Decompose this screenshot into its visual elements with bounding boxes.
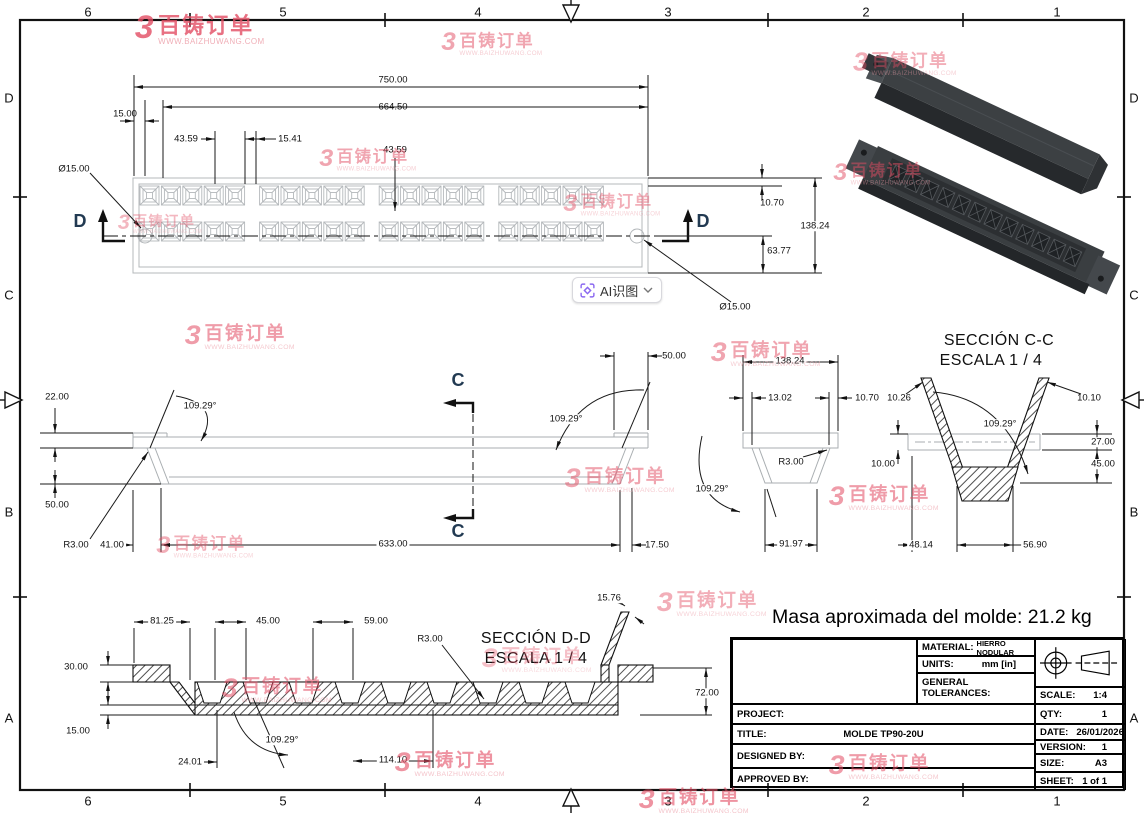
scale-value: 1:4 <box>1093 690 1107 701</box>
material-label: MATERIAL: <box>922 642 974 653</box>
dimension-label: 41.00 <box>98 540 126 550</box>
zone-label: 6 <box>84 794 91 809</box>
zone-label: 6 <box>84 5 91 20</box>
chevron-down-icon <box>643 287 653 293</box>
cavity-square <box>260 186 279 205</box>
qty-label: QTY: <box>1040 709 1062 720</box>
scale-label: SCALE: <box>1040 690 1075 701</box>
size-value: A3 <box>1095 758 1107 769</box>
dimension-label: 15.00 <box>113 109 137 119</box>
dimension-label: Ø15.00 <box>719 302 750 312</box>
cavity-square <box>302 186 321 205</box>
dimension-label: 50.00 <box>662 351 686 361</box>
ai-recognition-button[interactable]: AI识图 <box>572 277 662 303</box>
top-view <box>90 75 822 302</box>
cavity-square <box>443 186 462 205</box>
material-value: HIERRO NODULAR <box>977 639 1030 656</box>
mass-note: Masa aproximada del molde: 21.2 kg <box>772 606 1092 629</box>
dimension-label: 13.02 <box>768 393 792 403</box>
cavity-square <box>422 186 441 205</box>
cavity-square <box>520 186 539 205</box>
zone-label: 1 <box>1053 794 1060 809</box>
dimension-label: R3.00 <box>776 457 805 467</box>
cavity-square <box>443 222 462 241</box>
cavity-square <box>183 186 202 205</box>
drawing-sheet: 750.00664.5015.0043.5915.4143.59Ø15.0010… <box>0 0 1144 813</box>
cavity-square <box>499 186 518 205</box>
zone-label: 5 <box>279 794 286 809</box>
zone-label: 5 <box>279 5 286 20</box>
zone-label: C <box>4 288 13 303</box>
section-title: SECCIÓN D-D <box>481 631 591 647</box>
dimension-label: Ø15.00 <box>58 164 89 174</box>
cavity-square <box>140 222 159 241</box>
sheet-value: 1 of 1 <box>1082 776 1107 787</box>
cavity-square <box>401 222 420 241</box>
dimension-label: 15.76 <box>595 593 623 603</box>
dimension-label: R3.00 <box>63 540 88 550</box>
tb-sheet: SHEET: 1 of 1 <box>1035 772 1126 790</box>
cavity-square <box>401 186 420 205</box>
end-view <box>699 355 852 552</box>
dimension-label: 138.24 <box>798 221 831 231</box>
dimension-label: 81.25 <box>148 616 176 626</box>
view-letter: C <box>452 522 465 540</box>
dimension-label: 27.00 <box>1089 437 1117 447</box>
zone-label: B <box>1130 505 1139 520</box>
tb-designed: DESIGNED BY: <box>732 744 1035 768</box>
designed-label: DESIGNED BY: <box>737 751 805 762</box>
date-label: DATE: <box>1040 727 1068 738</box>
dimension-label: 114.10 <box>377 755 409 765</box>
section-title: ESCALA 1 / 4 <box>940 353 1043 369</box>
dimension-label: R3.00 <box>415 634 444 644</box>
cavity-square <box>499 222 518 241</box>
cavity-square <box>140 186 159 205</box>
tb-approved: APPROVED BY: <box>732 768 1035 790</box>
cavity-square <box>161 186 180 205</box>
tb-qty: QTY: 1 <box>1035 704 1126 724</box>
cavity-square <box>324 186 343 205</box>
dimension-label: 63.77 <box>767 246 791 256</box>
tb-empty-cell <box>732 639 917 704</box>
qty-value: 1 <box>1102 709 1107 720</box>
cavity-square <box>465 222 484 241</box>
cavity-square <box>226 222 245 241</box>
dimension-label: 750.00 <box>378 75 407 85</box>
dimension-label: 109.29° <box>264 735 301 745</box>
dimension-label: 91.97 <box>777 539 805 549</box>
dimension-label: 10.70 <box>855 393 879 403</box>
dimension-label: 45.00 <box>254 616 282 626</box>
ai-button-label: AI识图 <box>600 281 638 300</box>
zone-label: D <box>4 91 13 106</box>
size-label: SIZE: <box>1040 758 1064 769</box>
dimension-label: 109.29° <box>694 484 731 494</box>
view-letter: D <box>697 212 710 230</box>
version-value: 1 <box>1102 742 1107 753</box>
cavity-square <box>260 222 279 241</box>
zone-label: C <box>1129 288 1138 303</box>
cavity-square <box>204 186 223 205</box>
dimension-label: 109.29° <box>548 414 585 424</box>
dimension-label: 59.00 <box>362 616 390 626</box>
cavity-square <box>281 186 300 205</box>
view-letter: C <box>452 371 465 389</box>
cavity-square <box>422 222 441 241</box>
tb-project: PROJECT: <box>732 704 1035 724</box>
units-value: mm [in] <box>982 659 1016 670</box>
dimension-label: 138.24 <box>773 356 806 366</box>
cavity-square <box>345 186 364 205</box>
cavity-square <box>324 222 343 241</box>
dimension-label: 10.70 <box>760 198 784 208</box>
cavity-square <box>520 222 539 241</box>
cavity-square <box>379 222 398 241</box>
title-value: MOLDE TP90-20U <box>733 729 1034 740</box>
section-title: ESCALA 1 / 4 <box>485 651 588 667</box>
zone-label: A <box>1130 711 1139 726</box>
zone-label: 1 <box>1053 5 1060 20</box>
tb-title: TITLE: MOLDE TP90-20U <box>732 724 1035 744</box>
cavity-square <box>345 222 364 241</box>
cavity-square <box>542 186 561 205</box>
dimension-label: 50.00 <box>45 500 69 510</box>
dimension-label: 56.90 <box>1021 540 1049 550</box>
dimension-label: 15.41 <box>278 134 302 144</box>
cavity-square <box>584 186 603 205</box>
dimension-label: 48.14 <box>907 540 935 550</box>
cavity-square <box>226 186 245 205</box>
dimension-label: 10.26 <box>887 393 911 403</box>
section-cc-view <box>890 378 1112 552</box>
dimension-label: 10.00 <box>871 459 895 469</box>
scan-sparkle-icon <box>580 283 595 298</box>
cavity-square <box>302 222 321 241</box>
tb-projection-symbol <box>1035 639 1126 687</box>
cavity-square <box>204 222 223 241</box>
dimension-label: 633.00 <box>376 539 409 549</box>
view-letter: D <box>74 212 87 230</box>
version-label: VERSION: <box>1040 742 1086 753</box>
cavity-square <box>281 222 300 241</box>
zone-label: 3 <box>664 794 671 809</box>
zone-label: 4 <box>474 794 481 809</box>
dimension-label: 109.29° <box>182 401 219 411</box>
zone-label: 2 <box>862 794 869 809</box>
zone-label: 4 <box>474 5 481 20</box>
units-label: UNITS: <box>922 659 954 670</box>
cavity-square <box>183 222 202 241</box>
dimension-label: 43.59 <box>383 145 407 155</box>
dimension-label: 30.00 <box>64 662 88 672</box>
zone-label: 3 <box>664 5 671 20</box>
dimension-label: 17.50 <box>645 540 669 550</box>
dimension-label: 22.00 <box>45 392 69 402</box>
sheet-label: SHEET: <box>1040 776 1074 787</box>
zone-label: D <box>1129 91 1138 106</box>
project-label: PROJECT: <box>737 709 784 720</box>
dimension-label: 664.50 <box>378 102 407 112</box>
section-dd-view <box>100 600 712 768</box>
cavity-square <box>563 222 582 241</box>
date-value: 26/01/2026 <box>1076 727 1124 738</box>
zone-label: 2 <box>862 5 869 20</box>
tb-material: MATERIAL: HIERRO NODULAR <box>917 639 1035 656</box>
tb-version: VERSION: 1 <box>1035 740 1126 754</box>
tb-units: UNITS: mm [in] <box>917 656 1035 673</box>
dimension-label: 109.29° <box>982 419 1019 429</box>
cavity-square <box>563 186 582 205</box>
dimension-label: 10.10 <box>1077 393 1101 403</box>
cavity-square <box>584 222 603 241</box>
cavity-square <box>542 222 561 241</box>
dimension-label: 43.59 <box>174 134 198 144</box>
cavity-square <box>465 186 484 205</box>
section-title: SECCIÓN C-C <box>944 333 1054 349</box>
zone-label: B <box>5 505 14 520</box>
front-view <box>40 352 662 552</box>
dimension-label: 45.00 <box>1089 459 1117 469</box>
tolerances-label: GENERAL TOLERANCES: <box>922 677 1030 699</box>
tb-scale: SCALE: 1:4 <box>1035 687 1126 704</box>
dimension-label: 24.01 <box>178 757 202 767</box>
cavity-square <box>161 222 180 241</box>
projection-symbol-icon <box>1040 643 1121 683</box>
zone-label: A <box>5 711 14 726</box>
title-block: MATERIAL: HIERRO NODULAR UNITS: mm [in] … <box>730 637 1124 788</box>
tb-size: SIZE: A3 <box>1035 754 1126 772</box>
dimension-label: 15.00 <box>66 726 90 736</box>
dimension-label: 72.00 <box>693 688 721 698</box>
tb-date: DATE: 26/01/2026 <box>1035 724 1126 740</box>
approved-label: APPROVED BY: <box>737 774 809 785</box>
tb-tolerances: GENERAL TOLERANCES: <box>917 673 1035 704</box>
